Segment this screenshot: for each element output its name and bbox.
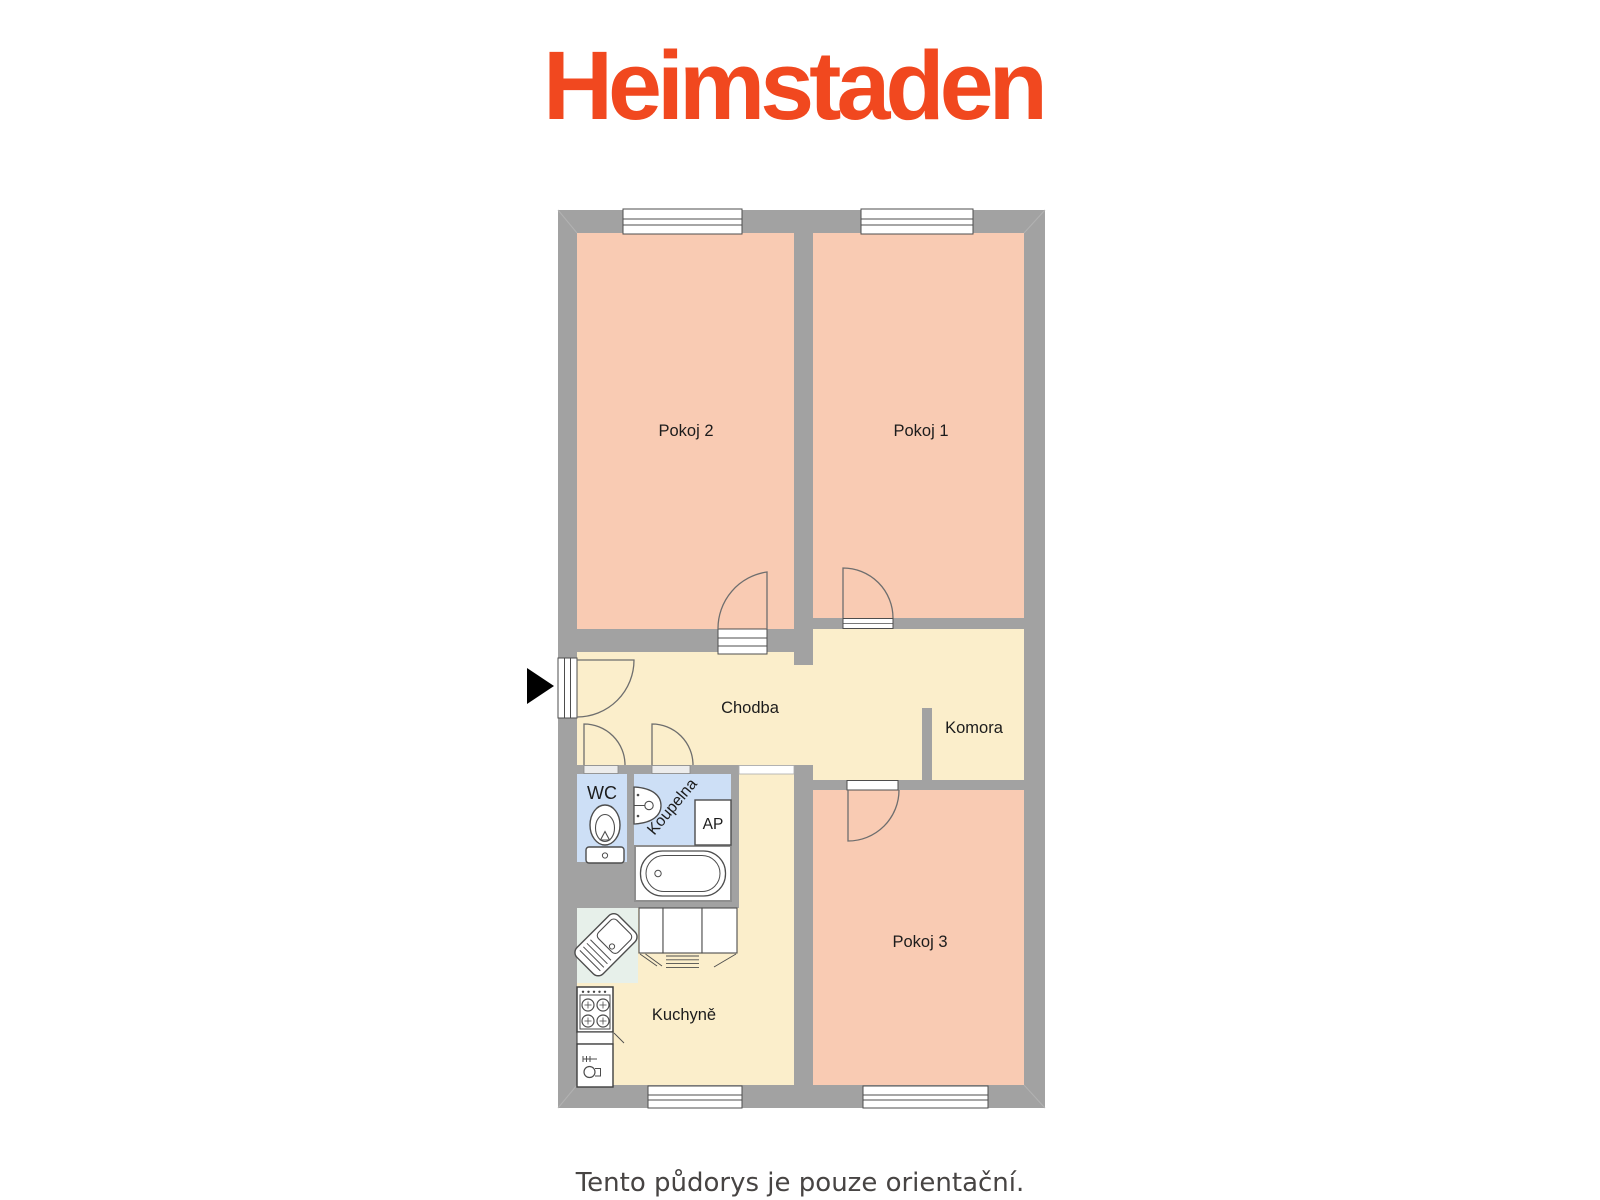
floor-plan: Pokoj 2 Pokoj 1 Chodba Komora WC Koupeln… <box>0 0 1600 1200</box>
kuchyne-passage-opening <box>739 766 794 775</box>
window-pokoj2 <box>623 209 742 234</box>
window-kuchyne <box>648 1086 742 1108</box>
room-label-pokoj3: Pokoj 3 <box>892 933 947 951</box>
room-label-pokoj1: Pokoj 1 <box>893 422 948 440</box>
entrance-arrow-icon <box>527 668 554 704</box>
window-pokoj3 <box>863 1086 988 1108</box>
room-label-komora: Komora <box>945 719 1004 737</box>
room-chodba-komora-floor <box>813 629 1024 780</box>
kuchyne-corridor-floor <box>739 774 794 908</box>
room-label-chodba: Chodba <box>721 699 780 717</box>
fridge-icon <box>577 1044 613 1087</box>
page: Heimstaden <box>0 0 1600 1200</box>
chodba-passage-floor <box>794 665 813 765</box>
room-label-kuchyne: Kuchyně <box>652 1006 716 1024</box>
stove-icon <box>577 987 613 1032</box>
room-label-wc: WC <box>587 783 617 803</box>
window-pokoj1 <box>861 209 973 234</box>
footer-note: Tento půdorys je pouze orientační. <box>0 1168 1600 1198</box>
washing-machine-label: AP <box>703 816 724 833</box>
komora-partition-wall <box>922 708 932 780</box>
bathtub-icon <box>635 846 731 901</box>
room-label-pokoj2: Pokoj 2 <box>658 422 713 440</box>
